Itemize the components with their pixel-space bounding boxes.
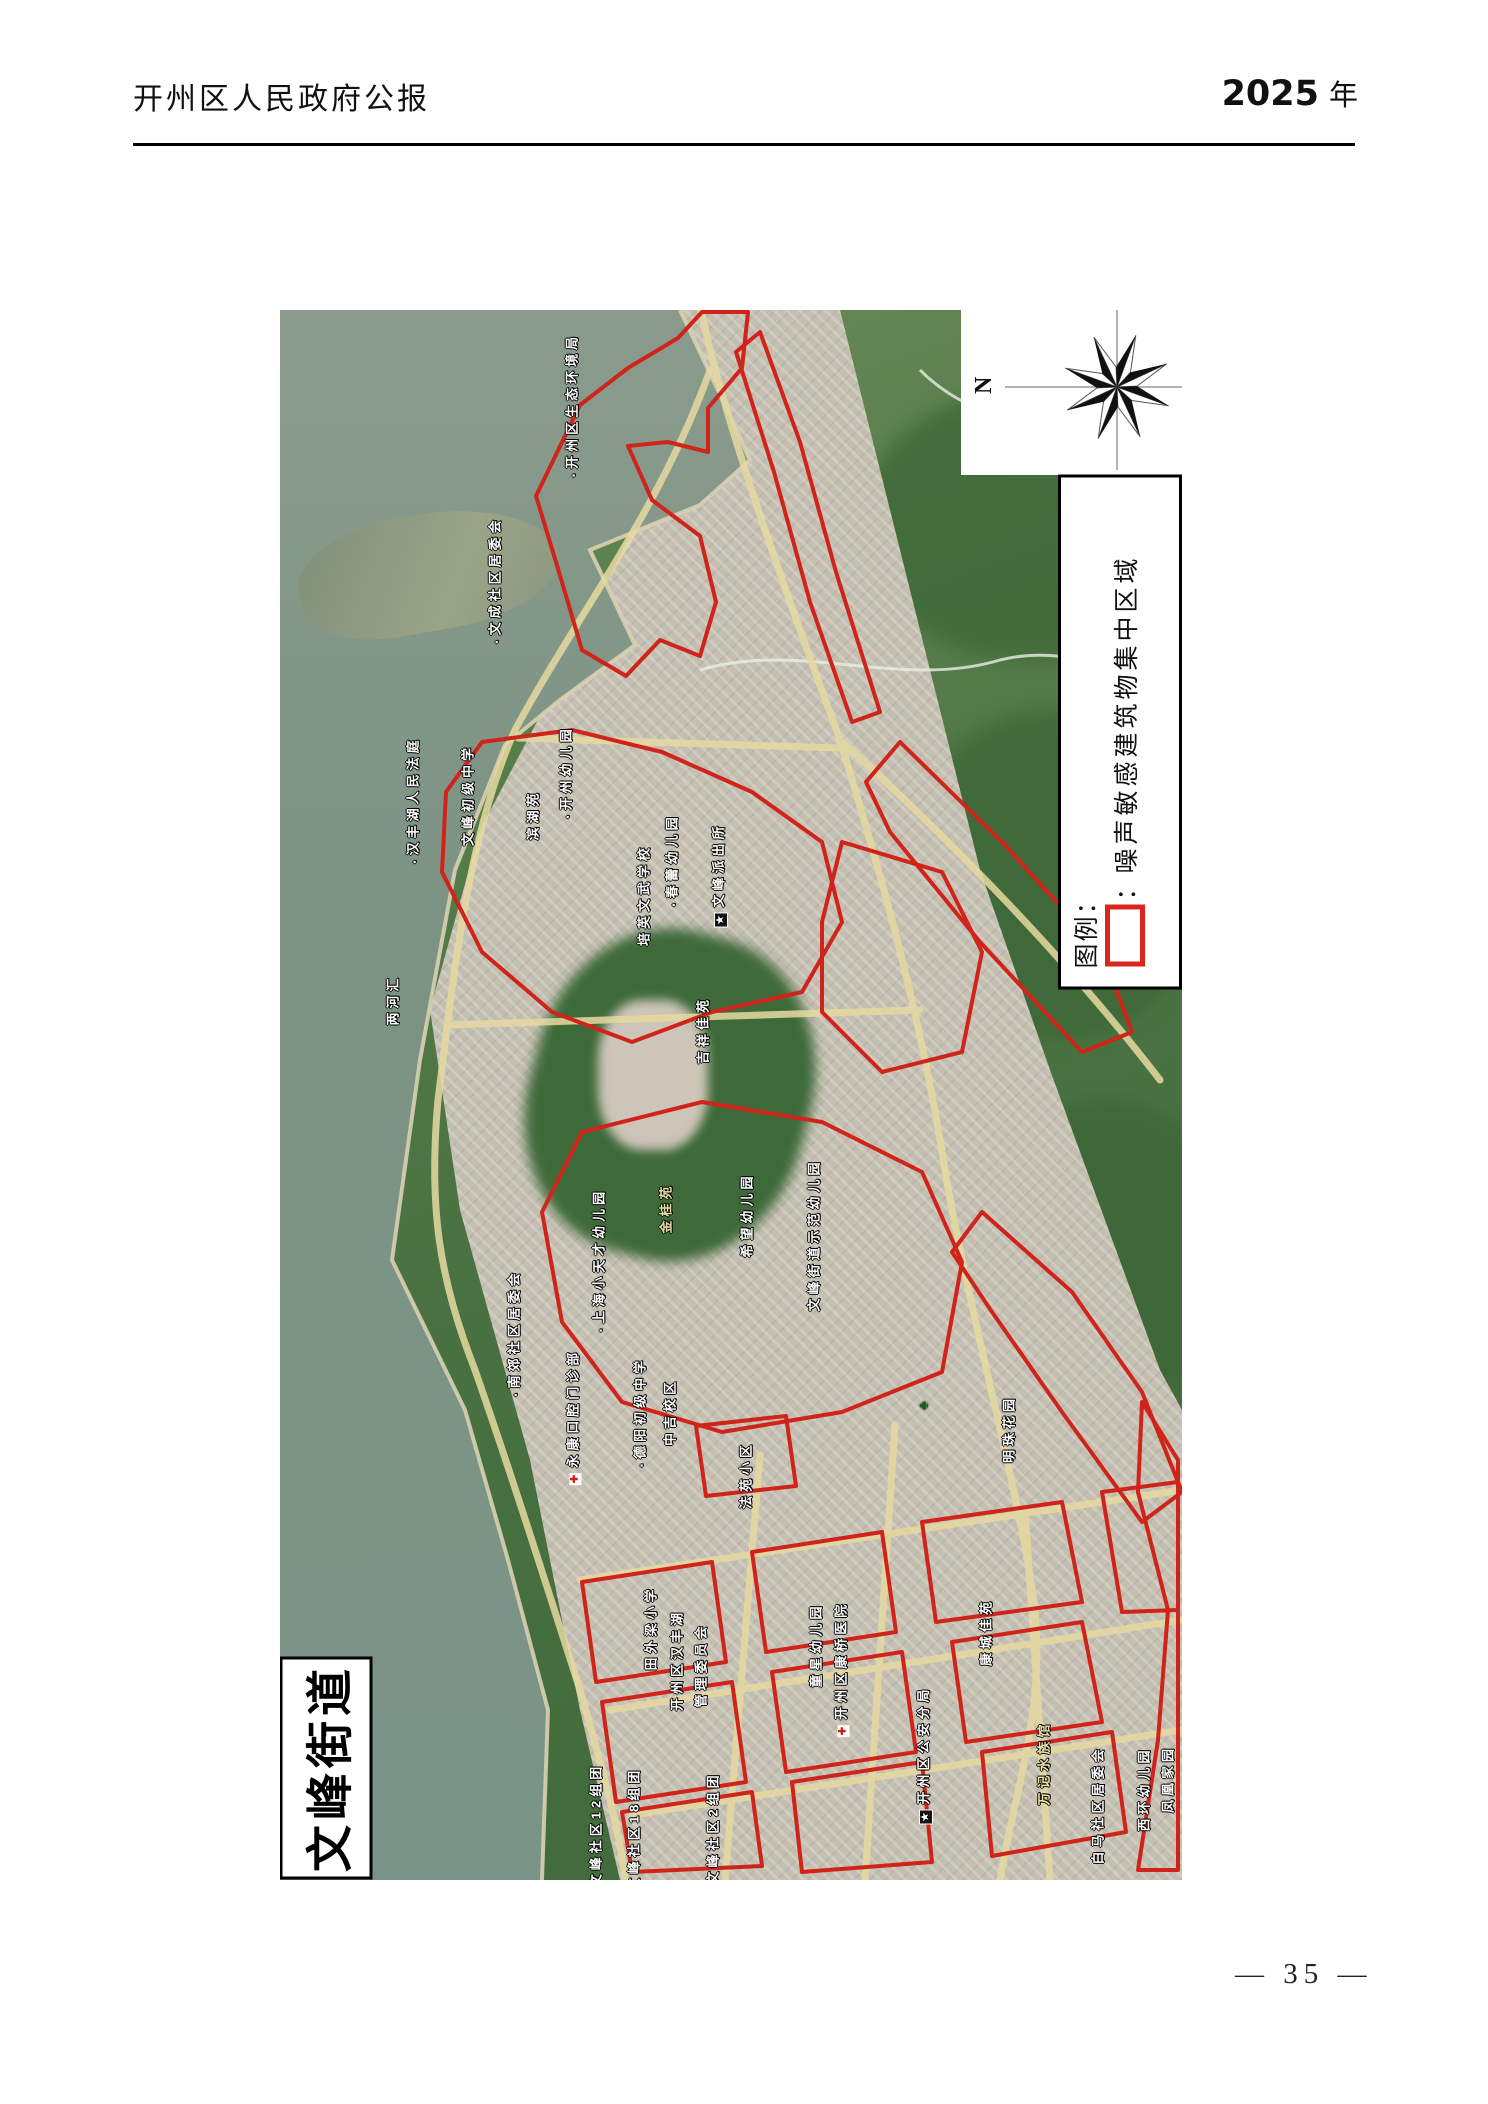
map-label-text: 文峰社区2组团 — [706, 1771, 721, 1880]
map-label-text: 春蕾幼儿园 — [665, 813, 680, 898]
dot-icon: ▪ — [596, 1329, 606, 1332]
cross-icon: ✚ — [838, 1725, 850, 1737]
map-label-text: 开州区生态环境局 — [565, 333, 580, 469]
map-label-text: 文峰派出所 — [711, 823, 726, 908]
map-label: 凤凰家园 — [1158, 1745, 1177, 1813]
star-icon: ★ — [919, 1810, 933, 1825]
legend-item-label: 噪声敏感建筑物集中区域 — [1107, 554, 1143, 873]
map-title-box: 文峰街道 — [280, 1657, 373, 1880]
map-label: 管理委员会 — [691, 1622, 710, 1707]
map-label: 文峰社区12组团 — [586, 1763, 605, 1880]
map-label: ★文峰派出所 — [708, 823, 728, 928]
dot-icon: ▪ — [492, 640, 502, 643]
map-label-text: 两河汇 — [386, 974, 401, 1025]
map-labels-layer: ▪开州区生态环境局▪文成社区居委会▪汉丰湖人民法庭文峰初级中学滨湖苑▪开州幼儿园… — [280, 310, 1182, 1880]
map-label-text: 文峰社区18组团 — [627, 1767, 642, 1880]
compass-rose: N — [961, 310, 1182, 475]
map-label: 万记水族馆 — [1034, 1720, 1053, 1805]
map-label: ▪上海小天才幼儿园 — [589, 1188, 608, 1332]
map-label-text: 西环幼儿园 — [1137, 1746, 1152, 1831]
map-label: ★开州区公安分局 — [913, 1686, 933, 1825]
map-label: 希望幼儿园 — [737, 1172, 756, 1257]
map-label: 开州区汉丰湖 — [667, 1609, 686, 1711]
map-label-text: 田外梁小学 — [644, 1585, 659, 1670]
map-label: 西环幼儿园 — [1134, 1746, 1153, 1831]
map-label-text: 汉丰湖人民法庭 — [406, 736, 421, 855]
dot-icon: ▪ — [563, 815, 573, 818]
legend-symbol-red-rectangle — [1105, 905, 1145, 967]
map-label-text: 滨湖苑 — [526, 789, 541, 840]
page-number: — 35 — — [1235, 1958, 1373, 1991]
map-label-text: 开州区康桥医院 — [834, 1601, 849, 1720]
legend-box: 图例： ： 噪声敏感建筑物集中区域 — [1058, 475, 1182, 990]
map-label-text: 万记水族馆 — [1037, 1720, 1052, 1805]
map-label: 中吉校区 — [660, 1378, 679, 1446]
map-title: 文峰街道 — [292, 1664, 361, 1872]
map-label-text: 希望幼儿园 — [740, 1172, 755, 1257]
map-label: 文峰初级中学 — [458, 744, 477, 846]
tree-icon: ♣ — [915, 1401, 931, 1410]
map-label-text: 培英文武学校 — [637, 844, 652, 946]
map-label-text: 金桂苑 — [659, 1182, 674, 1233]
satellite-map: ▪开州区生态环境局▪文成社区居委会▪汉丰湖人民法庭文峰初级中学滨湖苑▪开州幼儿园… — [280, 310, 1182, 1880]
map-label: 吉祥佳苑 — [693, 996, 712, 1064]
map-label: 文峰街道示范幼儿园 — [804, 1158, 823, 1311]
map-label: 田外梁小学 — [641, 1585, 660, 1670]
header-year-number: 2025 — [1222, 74, 1319, 114]
compass-cutout: N — [961, 310, 1182, 475]
map-label: ▪开州区生态环境局 — [562, 333, 581, 477]
map-label-text: 白马社区居委会 — [1091, 1745, 1106, 1864]
header-rule — [133, 143, 1355, 146]
map-label: 培英文武学校 — [634, 844, 653, 946]
map-label: 白马社区居委会 — [1088, 1745, 1107, 1864]
legend-item: ： 噪声敏感建筑物集中区域 — [1105, 478, 1145, 969]
map-label-text: 中吉校区 — [663, 1378, 678, 1446]
map-label-text: 南郊社区居委会 — [507, 1269, 522, 1388]
map-label: 文峰社区2组团 — [703, 1771, 722, 1880]
map-label: 明珠花园 — [999, 1395, 1018, 1463]
map-label: 文峰社区18组团 — [624, 1767, 643, 1880]
dot-icon: ▪ — [511, 1393, 521, 1396]
map-label: 两河汇 — [383, 974, 402, 1025]
header-title: 开州区人民政府公报 — [133, 74, 430, 118]
map-label: ✚永康口腔门诊部 — [563, 1349, 582, 1485]
map-label: ▪德阳初级中学 — [630, 1357, 649, 1467]
dot-icon: ▪ — [669, 903, 679, 906]
map-label-text: 管理委员会 — [694, 1622, 709, 1707]
map-label-text: 德阳初级中学 — [633, 1357, 648, 1459]
map-label-text: 凤凰家园 — [1161, 1745, 1176, 1813]
map-label: 法苑小区 — [736, 1441, 755, 1509]
map-label: 滨湖苑 — [523, 789, 542, 840]
map-label: ▪文成社区居委会 — [485, 516, 504, 643]
map-label: ✚开州区康桥医院 — [831, 1601, 850, 1737]
map-label: 康城佳苑 — [976, 1598, 995, 1666]
header-year: 2025 年 — [1222, 72, 1358, 114]
map-label-text: 文峰社区12组团 — [589, 1763, 604, 1880]
map-label-text: 上海小天才幼儿园 — [592, 1188, 607, 1324]
north-label: N — [971, 376, 997, 394]
map-label: 童星幼儿园 — [806, 1602, 825, 1687]
legend-separator: ： — [1107, 875, 1143, 900]
map-label-text: 明珠花园 — [1002, 1395, 1017, 1463]
dot-icon: ▪ — [637, 1464, 647, 1467]
map-label-text: 开州区汉丰湖 — [670, 1609, 685, 1711]
dot-icon: ▪ — [569, 474, 579, 477]
dot-icon: ▪ — [410, 860, 420, 863]
map-label: ▪南郊社区居委会 — [504, 1269, 523, 1396]
gazette-page: 开州区人民政府公报 2025 年 — [0, 0, 1488, 2104]
cross-icon: ✚ — [570, 1473, 582, 1485]
map-label-text: 文成社区居委会 — [488, 516, 503, 635]
map-label-text: 康城佳苑 — [979, 1598, 994, 1666]
map-label-text: 文峰街道示范幼儿园 — [807, 1158, 822, 1311]
map-label: 金桂苑 — [656, 1182, 675, 1233]
map-label-text: 永康口腔门诊部 — [566, 1349, 581, 1468]
map-label-text: 法苑小区 — [739, 1441, 754, 1509]
map-label: ▪开州幼儿园 — [556, 725, 575, 818]
map-label-text: 开州区公安分局 — [916, 1686, 931, 1805]
star-icon: ★ — [714, 913, 728, 928]
map-label-text: 文峰初级中学 — [461, 744, 476, 846]
map-label-text: 吉祥佳苑 — [696, 996, 711, 1064]
map-icon: ♣ — [915, 1396, 931, 1410]
map-label: ▪汉丰湖人民法庭 — [403, 736, 422, 863]
legend-title: 图例： — [1067, 478, 1103, 969]
map-label-text: 开州幼儿园 — [559, 725, 574, 810]
map-label: ▪春蕾幼儿园 — [662, 813, 681, 906]
header-year-unit: 年 — [1329, 80, 1358, 112]
map-label-text: 童星幼儿园 — [809, 1602, 824, 1687]
